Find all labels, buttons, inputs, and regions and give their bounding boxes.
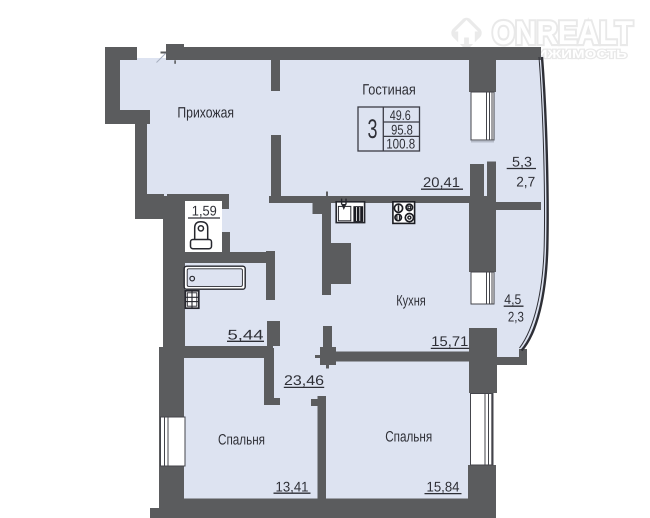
svg-text:1,59: 1,59 <box>192 203 217 219</box>
svg-text:13,41: 13,41 <box>276 478 309 494</box>
svg-text:23,46: 23,46 <box>284 372 324 388</box>
svg-text:15,71: 15,71 <box>431 333 468 349</box>
svg-text:15,84: 15,84 <box>427 479 460 495</box>
svg-text:2,3: 2,3 <box>508 309 524 325</box>
svg-text:Гостиная: Гостиная <box>362 82 416 99</box>
svg-text:4,5: 4,5 <box>504 291 521 307</box>
svg-text:Прихожая: Прихожая <box>177 105 234 122</box>
svg-text:Кухня: Кухня <box>396 293 426 310</box>
svg-text:ONREALT: ONREALT <box>492 14 633 51</box>
svg-text:Спальня: Спальня <box>385 429 432 446</box>
svg-text:5,44: 5,44 <box>228 327 264 343</box>
svg-text:5,3: 5,3 <box>512 153 532 169</box>
svg-text:3: 3 <box>368 114 378 144</box>
svg-text:100.8: 100.8 <box>386 136 415 152</box>
svg-text:Спальня: Спальня <box>218 432 265 449</box>
svg-text:2,7: 2,7 <box>516 174 535 190</box>
svg-text:20,41: 20,41 <box>423 174 460 190</box>
